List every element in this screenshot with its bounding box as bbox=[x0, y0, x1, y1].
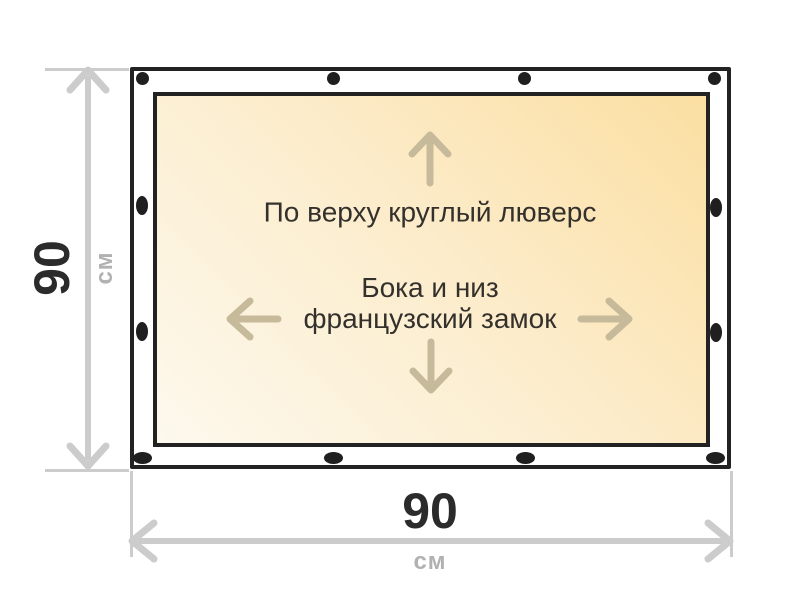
top-edge-annotation: По верху круглый люверс bbox=[264, 197, 597, 228]
sides-annotation: Бока и низ французский замок bbox=[304, 272, 557, 334]
right-arrow-icon bbox=[577, 293, 637, 345]
left-arrow-icon bbox=[222, 293, 282, 345]
round-grommet bbox=[327, 72, 340, 85]
sides-annotation-line2: французский замок bbox=[304, 303, 557, 334]
french-lock-slot bbox=[136, 322, 148, 341]
round-grommet bbox=[136, 72, 149, 85]
french-lock-slot bbox=[710, 198, 722, 217]
height-value: 90 bbox=[23, 240, 81, 296]
french-lock-slot bbox=[706, 452, 725, 464]
width-unit: см bbox=[413, 548, 446, 576]
width-value: 90 bbox=[402, 482, 458, 540]
french-lock-slot bbox=[516, 452, 535, 464]
down-arrow-icon bbox=[406, 338, 456, 396]
sides-annotation-line1: Бока и низ bbox=[304, 272, 557, 303]
french-lock-slot bbox=[136, 196, 148, 215]
french-lock-slot bbox=[324, 452, 343, 464]
up-arrow-icon bbox=[405, 129, 455, 187]
height-unit: см bbox=[91, 251, 119, 284]
round-grommet bbox=[518, 72, 531, 85]
french-lock-slot bbox=[710, 323, 722, 342]
product-diagram: 90 см 90 см По верху круглый люверс Бока… bbox=[0, 0, 800, 600]
round-grommet bbox=[708, 72, 721, 85]
french-lock-slot bbox=[133, 452, 152, 464]
